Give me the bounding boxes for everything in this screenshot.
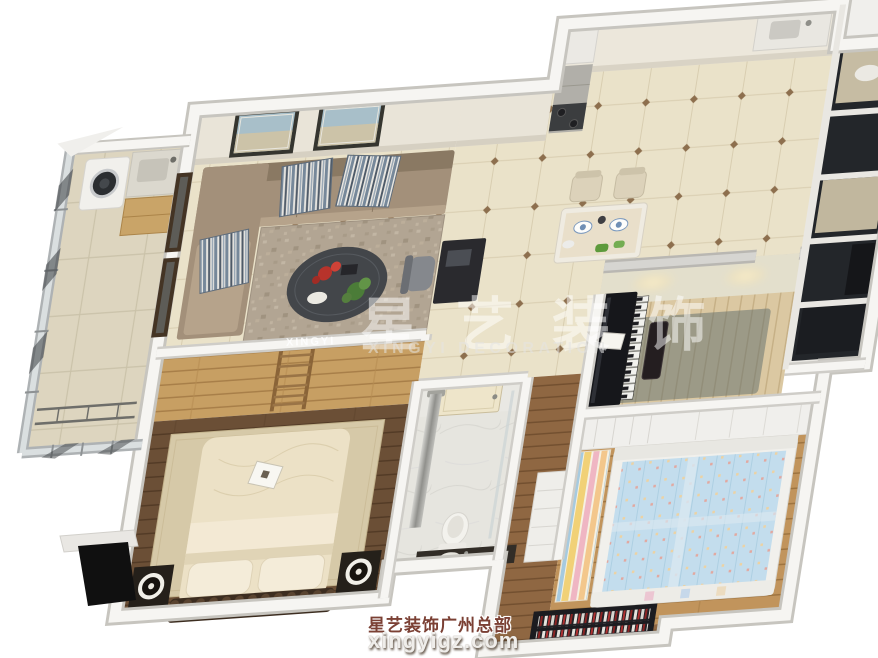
dining-chair [569, 174, 603, 202]
striped-pillow [200, 229, 249, 293]
kids-bed [590, 435, 799, 608]
pillow [185, 559, 254, 598]
sheet-music [599, 333, 625, 350]
cooktop [549, 103, 587, 132]
pillow [257, 554, 326, 593]
laptop [445, 249, 472, 267]
dining-table [553, 203, 647, 264]
dining-chair [613, 171, 647, 199]
floorplan-3d-scene [0, 0, 878, 658]
striped-pillow [279, 158, 332, 217]
floorplan-render: 星艺装饰 XINGYI DECORATION XINGYI 星艺装饰广州总部 x… [0, 0, 878, 658]
exterior-ac-box [60, 530, 138, 606]
